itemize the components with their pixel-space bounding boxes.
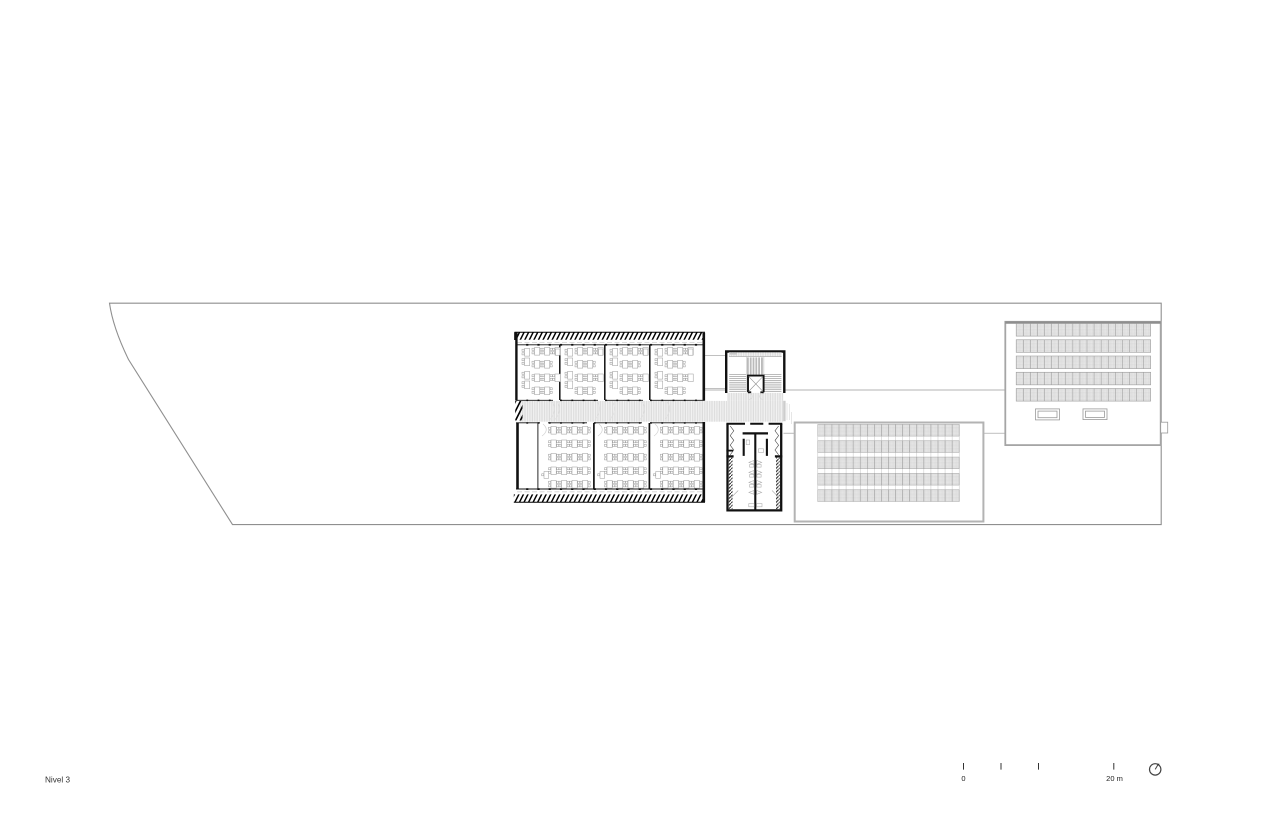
svg-text:Nivel 3: Nivel 3	[45, 776, 70, 785]
svg-text:20 m: 20 m	[1106, 774, 1123, 783]
svg-text:0: 0	[961, 774, 965, 783]
